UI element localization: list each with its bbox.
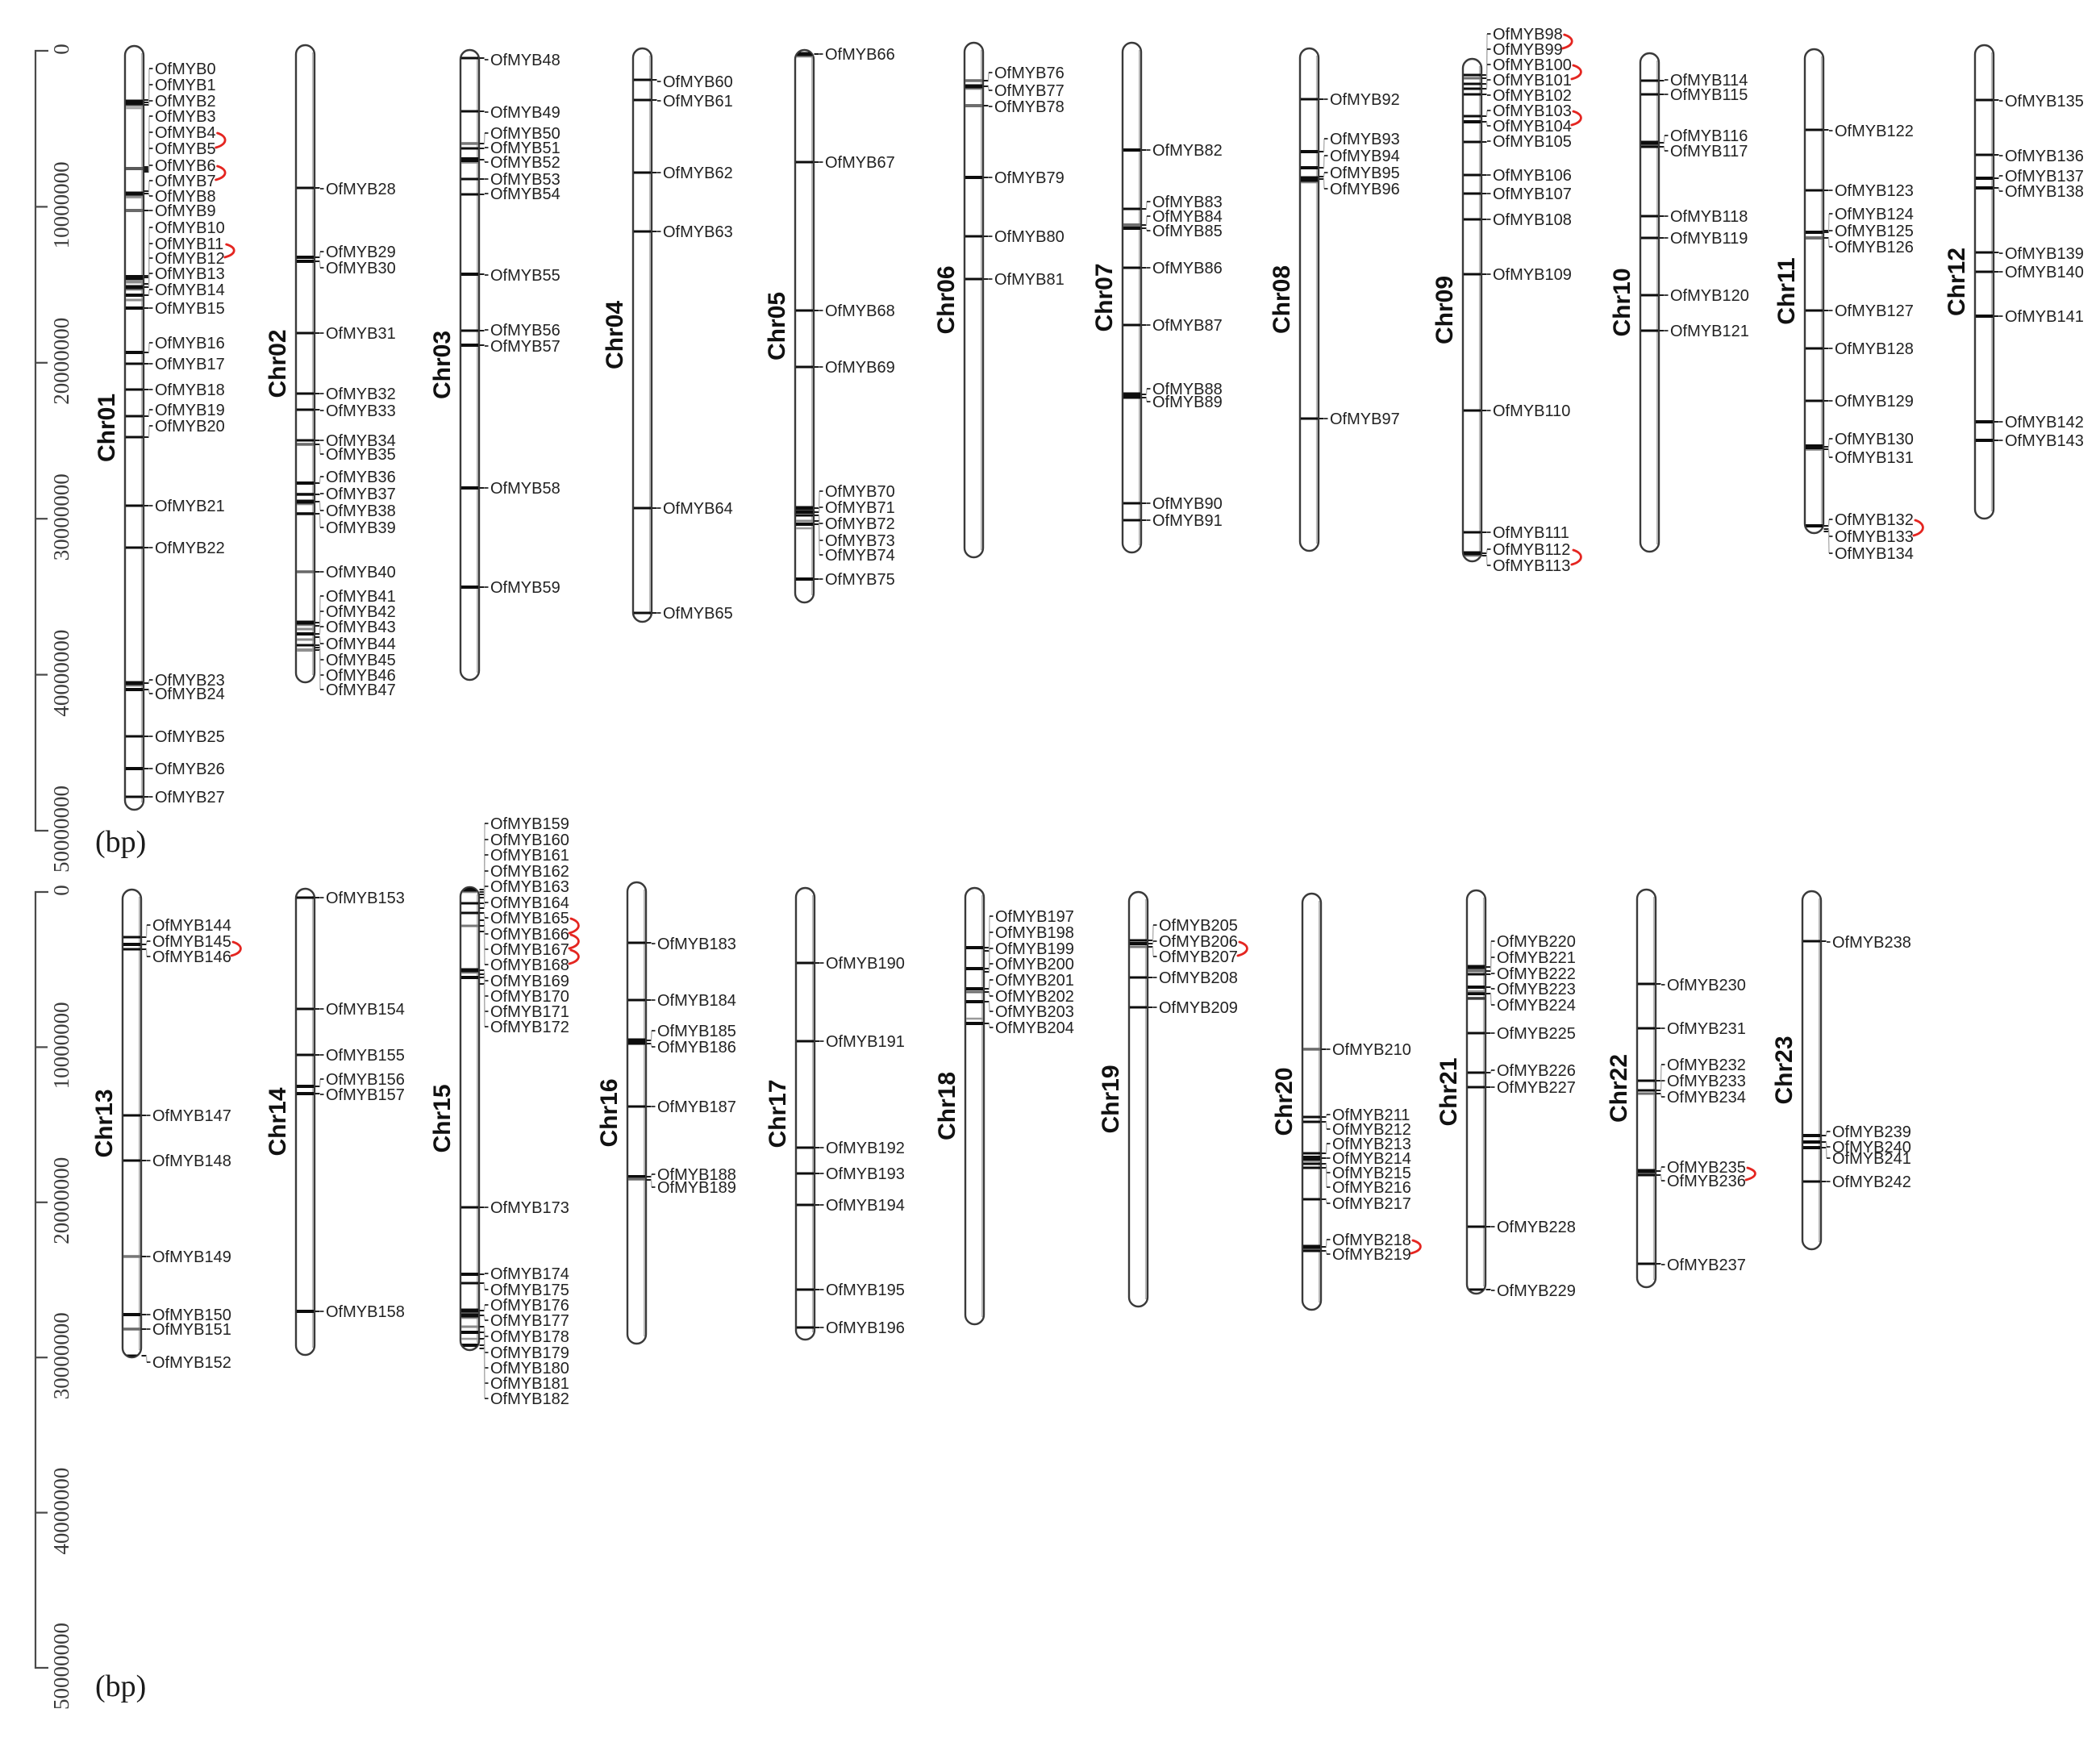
svg-text:OfMYB86: OfMYB86: [1152, 260, 1223, 277]
svg-text:Chr10: Chr10: [1609, 268, 1635, 336]
svg-text:OfMYB93: OfMYB93: [1330, 131, 1400, 148]
svg-text:OfMYB208: OfMYB208: [1159, 969, 1238, 987]
svg-text:OfMYB0: OfMYB0: [155, 60, 216, 78]
svg-text:OfMYB146: OfMYB146: [152, 948, 231, 966]
svg-text:0: 0: [49, 885, 73, 896]
svg-text:OfMYB108: OfMYB108: [1493, 211, 1572, 229]
svg-text:OfMYB65: OfMYB65: [663, 605, 733, 623]
svg-text:OfMYB107: OfMYB107: [1493, 185, 1572, 203]
svg-text:OfMYB236: OfMYB236: [1667, 1173, 1746, 1190]
svg-text:OfMYB38: OfMYB38: [326, 502, 396, 520]
svg-text:OfMYB43: OfMYB43: [326, 619, 396, 636]
svg-text:OfMYB22: OfMYB22: [155, 540, 225, 557]
svg-text:OfMYB17: OfMYB17: [155, 356, 225, 373]
svg-text:OfMYB112: OfMYB112: [1493, 541, 1570, 559]
svg-text:OfMYB192: OfMYB192: [826, 1140, 905, 1157]
svg-text:OfMYB191: OfMYB191: [826, 1033, 905, 1051]
svg-text:Chr05: Chr05: [764, 292, 790, 361]
svg-text:OfMYB158: OfMYB158: [326, 1303, 405, 1321]
svg-text:OfMYB63: OfMYB63: [663, 223, 733, 241]
svg-text:OfMYB117: OfMYB117: [1670, 143, 1748, 160]
svg-text:OfMYB56: OfMYB56: [490, 322, 560, 340]
svg-text:OfMYB111: OfMYB111: [1493, 524, 1569, 542]
svg-text:OfMYB28: OfMYB28: [326, 181, 396, 198]
svg-text:OfMYB74: OfMYB74: [825, 547, 895, 565]
svg-text:OfMYB129: OfMYB129: [1835, 393, 1914, 411]
svg-text:OfMYB143: OfMYB143: [2005, 432, 2084, 450]
svg-text:OfMYB178: OfMYB178: [490, 1328, 569, 1346]
svg-text:OfMYB187: OfMYB187: [657, 1098, 736, 1116]
svg-text:OfMYB207: OfMYB207: [1159, 948, 1238, 966]
svg-text:OfMYB229: OfMYB229: [1497, 1282, 1576, 1300]
svg-text:Chr09: Chr09: [1431, 276, 1458, 344]
svg-text:OfMYB72: OfMYB72: [825, 515, 895, 533]
svg-text:OfMYB68: OfMYB68: [825, 302, 895, 320]
svg-text:OfMYB29: OfMYB29: [326, 244, 396, 261]
svg-text:OfMYB154: OfMYB154: [326, 1001, 405, 1019]
svg-text:OfMYB92: OfMYB92: [1330, 91, 1400, 109]
svg-text:40000000: 40000000: [49, 1468, 73, 1555]
svg-text:OfMYB36: OfMYB36: [326, 469, 396, 486]
svg-text:OfMYB223: OfMYB223: [1497, 981, 1576, 998]
svg-text:50000000: 50000000: [49, 786, 73, 873]
svg-text:Chr13: Chr13: [91, 1089, 118, 1157]
svg-text:20000000: 20000000: [49, 1157, 73, 1244]
svg-text:OfMYB161: OfMYB161: [490, 847, 569, 865]
svg-text:OfMYB14: OfMYB14: [155, 281, 225, 299]
svg-text:10000000: 10000000: [49, 1002, 73, 1089]
svg-text:OfMYB115: OfMYB115: [1670, 86, 1748, 104]
svg-text:OfMYB157: OfMYB157: [326, 1086, 405, 1104]
svg-text:OfMYB217: OfMYB217: [1332, 1195, 1411, 1213]
svg-text:OfMYB64: OfMYB64: [663, 500, 733, 518]
svg-text:Chr17: Chr17: [765, 1079, 791, 1148]
svg-text:OfMYB198: OfMYB198: [995, 924, 1074, 942]
svg-text:OfMYB237: OfMYB237: [1667, 1257, 1746, 1274]
svg-text:OfMYB155: OfMYB155: [326, 1047, 405, 1065]
svg-text:OfMYB221: OfMYB221: [1497, 949, 1576, 967]
svg-text:OfMYB128: OfMYB128: [1835, 340, 1914, 358]
svg-text:OfMYB3: OfMYB3: [155, 108, 216, 126]
svg-text:OfMYB47: OfMYB47: [326, 681, 396, 699]
svg-text:OfMYB220: OfMYB220: [1497, 933, 1576, 951]
svg-text:OfMYB15: OfMYB15: [155, 300, 225, 318]
svg-text:OfMYB75: OfMYB75: [825, 571, 895, 589]
svg-text:OfMYB219: OfMYB219: [1332, 1246, 1411, 1264]
svg-text:Chr16: Chr16: [596, 1078, 623, 1147]
svg-text:OfMYB113: OfMYB113: [1493, 557, 1570, 575]
svg-text:OfMYB5: OfMYB5: [155, 140, 216, 158]
svg-text:40000000: 40000000: [49, 630, 73, 717]
svg-text:OfMYB122: OfMYB122: [1835, 123, 1914, 140]
svg-text:OfMYB81: OfMYB81: [994, 271, 1065, 289]
svg-text:OfMYB242: OfMYB242: [1832, 1173, 1911, 1191]
svg-text:OfMYB231: OfMYB231: [1667, 1020, 1746, 1038]
svg-text:OfMYB26: OfMYB26: [155, 761, 225, 778]
svg-text:30000000: 30000000: [49, 1312, 73, 1399]
svg-text:OfMYB182: OfMYB182: [490, 1390, 569, 1408]
svg-text:OfMYB136: OfMYB136: [2005, 148, 2084, 165]
svg-text:OfMYB109: OfMYB109: [1493, 266, 1572, 284]
svg-text:Chr12: Chr12: [1944, 248, 1970, 316]
svg-text:Chr06: Chr06: [933, 265, 960, 334]
svg-text:Chr11: Chr11: [1773, 257, 1800, 324]
svg-text:OfMYB27: OfMYB27: [155, 789, 225, 806]
svg-text:OfMYB159: OfMYB159: [490, 815, 569, 833]
svg-text:OfMYB238: OfMYB238: [1832, 934, 1911, 952]
svg-text:OfMYB196: OfMYB196: [826, 1319, 905, 1337]
svg-text:OfMYB140: OfMYB140: [2005, 264, 2084, 281]
svg-text:OfMYB79: OfMYB79: [994, 169, 1065, 187]
svg-text:OfMYB131: OfMYB131: [1835, 449, 1914, 467]
svg-text:Chr22: Chr22: [1606, 1054, 1632, 1123]
svg-text:OfMYB147: OfMYB147: [152, 1107, 231, 1125]
svg-text:OfMYB1: OfMYB1: [155, 77, 216, 94]
svg-text:OfMYB186: OfMYB186: [657, 1039, 736, 1057]
svg-text:OfMYB230: OfMYB230: [1667, 977, 1746, 994]
svg-text:0: 0: [49, 44, 73, 55]
svg-text:OfMYB124: OfMYB124: [1835, 206, 1914, 223]
svg-text:OfMYB89: OfMYB89: [1152, 394, 1223, 411]
svg-text:(bp): (bp): [95, 1669, 146, 1703]
svg-text:OfMYB91: OfMYB91: [1152, 512, 1223, 530]
svg-text:OfMYB70: OfMYB70: [825, 483, 895, 501]
svg-text:OfMYB9: OfMYB9: [155, 202, 216, 220]
svg-text:OfMYB121: OfMYB121: [1670, 323, 1749, 340]
svg-text:OfMYB66: OfMYB66: [825, 46, 895, 64]
svg-text:OfMYB227: OfMYB227: [1497, 1079, 1576, 1097]
svg-text:OfMYB48: OfMYB48: [490, 52, 560, 69]
svg-text:OfMYB21: OfMYB21: [155, 498, 225, 515]
svg-text:OfMYB119: OfMYB119: [1670, 230, 1748, 248]
svg-text:50000000: 50000000: [49, 1623, 73, 1710]
svg-text:OfMYB52: OfMYB52: [490, 154, 560, 172]
svg-text:OfMYB172: OfMYB172: [490, 1019, 569, 1036]
svg-text:OfMYB61: OfMYB61: [663, 93, 733, 110]
svg-text:OfMYB123: OfMYB123: [1835, 182, 1914, 200]
svg-text:OfMYB130: OfMYB130: [1835, 431, 1914, 448]
svg-text:OfMYB33: OfMYB33: [326, 402, 396, 420]
svg-text:OfMYB4: OfMYB4: [155, 124, 216, 142]
svg-text:OfMYB105: OfMYB105: [1493, 133, 1572, 151]
svg-text:OfMYB225: OfMYB225: [1497, 1025, 1576, 1043]
svg-text:OfMYB201: OfMYB201: [995, 972, 1074, 990]
svg-text:OfMYB183: OfMYB183: [657, 936, 736, 953]
svg-text:20000000: 20000000: [49, 318, 73, 405]
svg-text:Chr02: Chr02: [265, 329, 291, 398]
svg-text:OfMYB184: OfMYB184: [657, 992, 736, 1010]
svg-text:OfMYB189: OfMYB189: [657, 1179, 736, 1197]
svg-text:Chr01: Chr01: [94, 394, 120, 462]
svg-text:OfMYB209: OfMYB209: [1159, 999, 1238, 1017]
svg-text:Chr20: Chr20: [1271, 1067, 1298, 1136]
svg-text:OfMYB200: OfMYB200: [995, 956, 1074, 973]
svg-text:Chr23: Chr23: [1771, 1036, 1798, 1104]
svg-text:OfMYB203: OfMYB203: [995, 1003, 1074, 1021]
svg-text:Chr07: Chr07: [1091, 263, 1118, 331]
svg-text:OfMYB32: OfMYB32: [326, 386, 396, 403]
svg-text:OfMYB57: OfMYB57: [490, 338, 560, 356]
svg-text:OfMYB118: OfMYB118: [1670, 208, 1748, 226]
svg-text:OfMYB62: OfMYB62: [663, 165, 733, 182]
svg-text:OfMYB232: OfMYB232: [1667, 1057, 1746, 1074]
svg-text:Chr03: Chr03: [429, 331, 456, 399]
svg-text:Chr08: Chr08: [1269, 265, 1295, 334]
svg-text:OfMYB120: OfMYB120: [1670, 287, 1749, 305]
svg-text:OfMYB138: OfMYB138: [2005, 183, 2084, 201]
svg-text:Chr04: Chr04: [602, 301, 628, 369]
svg-text:Chr14: Chr14: [265, 1087, 291, 1156]
svg-text:OfMYB35: OfMYB35: [326, 446, 396, 464]
svg-text:OfMYB197: OfMYB197: [995, 908, 1074, 926]
svg-text:OfMYB110: OfMYB110: [1493, 402, 1570, 420]
svg-text:OfMYB190: OfMYB190: [826, 955, 905, 973]
svg-text:OfMYB132: OfMYB132: [1835, 511, 1914, 529]
svg-text:OfMYB241: OfMYB241: [1832, 1150, 1911, 1168]
svg-text:OfMYB76: OfMYB76: [994, 65, 1065, 82]
svg-text:Chr21: Chr21: [1435, 1057, 1462, 1126]
svg-text:OfMYB193: OfMYB193: [826, 1165, 905, 1183]
svg-text:OfMYB87: OfMYB87: [1152, 317, 1223, 335]
svg-text:OfMYB90: OfMYB90: [1152, 495, 1223, 513]
svg-text:OfMYB77: OfMYB77: [994, 82, 1065, 100]
svg-text:OfMYB60: OfMYB60: [663, 73, 733, 91]
svg-text:OfMYB97: OfMYB97: [1330, 411, 1400, 428]
svg-text:OfMYB24: OfMYB24: [155, 686, 225, 703]
svg-text:OfMYB96: OfMYB96: [1330, 181, 1400, 198]
svg-text:OfMYB18: OfMYB18: [155, 381, 225, 399]
svg-text:OfMYB25: OfMYB25: [155, 728, 225, 746]
svg-text:OfMYB58: OfMYB58: [490, 480, 560, 498]
svg-text:OfMYB59: OfMYB59: [490, 579, 560, 597]
svg-text:OfMYB19: OfMYB19: [155, 402, 225, 419]
svg-text:OfMYB149: OfMYB149: [152, 1248, 231, 1266]
svg-text:OfMYB165: OfMYB165: [490, 910, 569, 927]
svg-text:OfMYB216: OfMYB216: [1332, 1179, 1411, 1197]
svg-text:OfMYB163: OfMYB163: [490, 878, 569, 896]
svg-text:OfMYB173: OfMYB173: [490, 1199, 569, 1217]
svg-text:OfMYB67: OfMYB67: [825, 154, 895, 172]
svg-text:OfMYB39: OfMYB39: [326, 519, 396, 537]
svg-text:Chr19: Chr19: [1098, 1065, 1124, 1133]
svg-text:30000000: 30000000: [49, 473, 73, 561]
svg-text:OfMYB177: OfMYB177: [490, 1312, 569, 1330]
svg-text:OfMYB10: OfMYB10: [155, 219, 225, 237]
svg-text:OfMYB95: OfMYB95: [1330, 165, 1400, 182]
svg-text:OfMYB153: OfMYB153: [326, 890, 405, 907]
svg-text:OfMYB141: OfMYB141: [2005, 308, 2084, 326]
svg-text:OfMYB205: OfMYB205: [1159, 917, 1238, 935]
svg-text:OfMYB195: OfMYB195: [826, 1282, 905, 1299]
svg-text:OfMYB224: OfMYB224: [1497, 997, 1576, 1015]
svg-text:Chr15: Chr15: [429, 1084, 456, 1152]
svg-text:OfMYB204: OfMYB204: [995, 1019, 1074, 1037]
svg-text:OfMYB142: OfMYB142: [2005, 414, 2084, 431]
svg-text:OfMYB174: OfMYB174: [490, 1265, 569, 1283]
svg-text:OfMYB40: OfMYB40: [326, 564, 396, 581]
svg-text:OfMYB20: OfMYB20: [155, 418, 225, 436]
svg-text:OfMYB139: OfMYB139: [2005, 245, 2084, 263]
svg-text:OfMYB55: OfMYB55: [490, 267, 560, 285]
svg-text:OfMYB135: OfMYB135: [2005, 93, 2084, 110]
svg-text:OfMYB228: OfMYB228: [1497, 1219, 1576, 1236]
svg-text:OfMYB168: OfMYB168: [490, 957, 569, 974]
svg-text:Chr18: Chr18: [934, 1072, 960, 1140]
svg-text:OfMYB106: OfMYB106: [1493, 167, 1572, 185]
svg-text:OfMYB49: OfMYB49: [490, 104, 560, 122]
svg-text:OfMYB152: OfMYB152: [152, 1354, 231, 1372]
svg-text:OfMYB13: OfMYB13: [155, 265, 225, 283]
svg-text:OfMYB134: OfMYB134: [1835, 545, 1914, 563]
svg-text:OfMYB144: OfMYB144: [152, 917, 231, 935]
svg-text:OfMYB69: OfMYB69: [825, 359, 895, 377]
svg-text:OfMYB30: OfMYB30: [326, 260, 396, 277]
svg-text:OfMYB31: OfMYB31: [326, 325, 396, 343]
svg-text:OfMYB234: OfMYB234: [1667, 1089, 1746, 1107]
svg-text:OfMYB151: OfMYB151: [152, 1321, 231, 1339]
svg-text:OfMYB148: OfMYB148: [152, 1152, 231, 1170]
svg-text:OfMYB133: OfMYB133: [1835, 528, 1914, 546]
svg-text:OfMYB210: OfMYB210: [1332, 1041, 1411, 1059]
svg-text:OfMYB80: OfMYB80: [994, 228, 1065, 246]
svg-text:OfMYB226: OfMYB226: [1497, 1062, 1576, 1080]
svg-text:OfMYB71: OfMYB71: [825, 499, 895, 517]
svg-text:(bp): (bp): [95, 825, 146, 859]
svg-text:OfMYB85: OfMYB85: [1152, 223, 1223, 240]
svg-text:OfMYB233: OfMYB233: [1667, 1073, 1746, 1090]
svg-text:OfMYB126: OfMYB126: [1835, 239, 1914, 256]
svg-text:OfMYB37: OfMYB37: [326, 486, 396, 503]
svg-text:OfMYB44: OfMYB44: [326, 636, 396, 653]
svg-text:OfMYB82: OfMYB82: [1152, 142, 1223, 160]
svg-text:OfMYB194: OfMYB194: [826, 1197, 905, 1215]
svg-text:OfMYB125: OfMYB125: [1835, 223, 1914, 240]
svg-text:OfMYB185: OfMYB185: [657, 1023, 736, 1040]
svg-text:OfMYB16: OfMYB16: [155, 335, 225, 352]
svg-text:OfMYB78: OfMYB78: [994, 98, 1065, 116]
svg-text:OfMYB54: OfMYB54: [490, 185, 560, 203]
svg-text:10000000: 10000000: [49, 161, 73, 248]
svg-text:OfMYB94: OfMYB94: [1330, 148, 1400, 165]
svg-text:OfMYB127: OfMYB127: [1835, 302, 1914, 320]
